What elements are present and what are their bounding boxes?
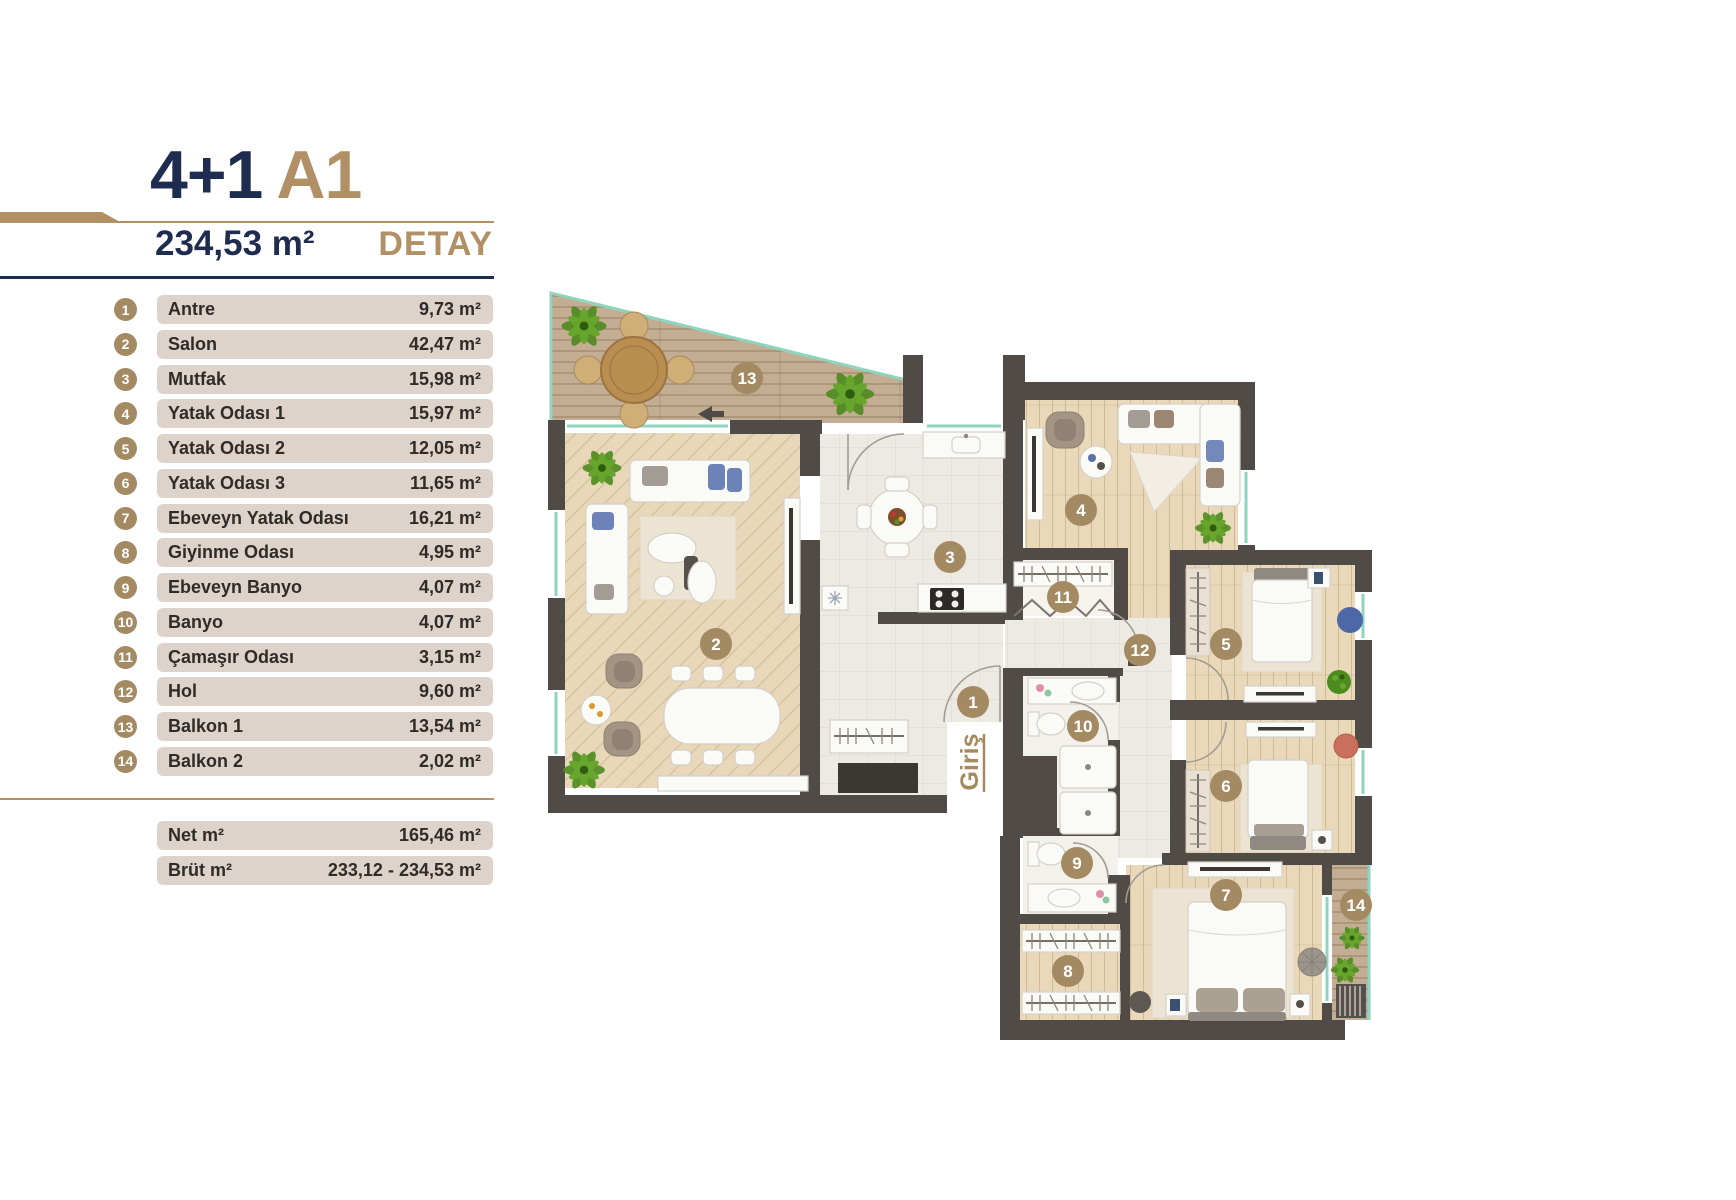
total-area: 234,53 m² <box>155 224 315 264</box>
legend-row: 1Antre9,73 m² <box>0 295 500 324</box>
room-name: Balkon 2 <box>168 751 243 772</box>
sink <box>1048 889 1080 907</box>
room-name: Ebeveyn Yatak Odası <box>168 508 349 529</box>
legend-row: 6Yatak Odası 311,65 m² <box>0 469 500 498</box>
side-table <box>581 695 611 725</box>
pouf <box>1337 607 1363 633</box>
sink <box>1072 682 1104 700</box>
snowflake-icon <box>828 591 842 605</box>
room-area: 42,47 m² <box>409 334 481 355</box>
room-area: 15,98 m² <box>409 369 481 390</box>
room-name: Antre <box>168 299 215 320</box>
legend-row: 12Hol9,60 m² <box>0 677 500 706</box>
legend-bar: Yatak Odası 311,65 m² <box>157 469 493 498</box>
legend-number-badge: 11 <box>114 646 137 669</box>
divider-navy <box>0 276 494 279</box>
plan-room-number: 2 <box>711 635 720 654</box>
legend-row: 8Giyinme Odası4,95 m² <box>0 538 500 567</box>
net-value: 165,46 m² <box>399 825 481 846</box>
block-code: A1 <box>276 137 361 213</box>
plan-room-number: 10 <box>1074 717 1093 736</box>
plan-room-number: 5 <box>1221 635 1230 654</box>
room-name: Banyo <box>168 612 223 633</box>
legend-bar: Hol9,60 m² <box>157 677 493 706</box>
brut-area-row: Brüt m² 233,12 - 234,53 m² <box>157 856 493 885</box>
room-name: Çamaşır Odası <box>168 647 294 668</box>
sideboard <box>658 776 808 791</box>
pouf <box>1129 991 1151 1013</box>
room-area: 11,65 m² <box>410 473 481 494</box>
room-area: 9,73 m² <box>419 299 481 320</box>
legend-row: 14Balkon 22,02 m² <box>0 747 500 776</box>
room-area: 13,54 m² <box>409 716 481 737</box>
pillow <box>1254 824 1304 836</box>
headboard <box>1250 836 1306 850</box>
legend-number-badge: 4 <box>114 402 137 425</box>
coffee-table <box>688 561 716 603</box>
room-area: 15,97 m² <box>409 403 481 424</box>
legend-row: 13Balkon 113,54 m² <box>0 712 500 741</box>
plan-room-number: 1 <box>968 693 977 712</box>
pillow <box>1243 988 1285 1012</box>
plan-room-number: 11 <box>1054 588 1072 607</box>
legend-bar: Mutfak15,98 m² <box>157 365 493 394</box>
legend-bar: Yatak Odası 212,05 m² <box>157 434 493 463</box>
room-name: Yatak Odası 2 <box>168 438 285 459</box>
pouf <box>1334 734 1358 758</box>
plan-room-number: 6 <box>1221 777 1230 796</box>
legend-row: 5Yatak Odası 212,05 m² <box>0 434 500 463</box>
plan-room-number: 14 <box>1347 896 1366 915</box>
room-area: 12,05 m² <box>409 438 481 459</box>
room-name: Mutfak <box>168 369 226 390</box>
legend-row: 11Çamaşır Odası3,15 m² <box>0 643 500 672</box>
kitchen-sink <box>952 437 980 453</box>
legend-bar: Ebeveyn Yatak Odası16,21 m² <box>157 504 493 533</box>
legend-bar: Banyo4,07 m² <box>157 608 493 637</box>
page-title: 4+1A1 <box>150 136 361 214</box>
room-area: 9,60 m² <box>419 681 481 702</box>
legend-number-badge: 6 <box>114 472 137 495</box>
legend-bar: Antre9,73 m² <box>157 295 493 324</box>
shoe-cabinet <box>838 763 918 793</box>
legend-row: 3Mutfak15,98 m² <box>0 365 500 394</box>
legend-bar: Salon42,47 m² <box>157 330 493 359</box>
shaft <box>1023 756 1057 830</box>
legend-bar: Giyinme Odası4,95 m² <box>157 538 493 567</box>
legend-number-badge: 14 <box>114 750 137 773</box>
layout-type: 4+1 <box>150 137 262 213</box>
entrance-text: Giriş <box>956 734 984 791</box>
legend-row: 9Ebeveyn Banyo4,07 m² <box>0 573 500 602</box>
legend-row: 4Yatak Odası 115,97 m² <box>0 399 500 428</box>
detail-label: DETAY <box>378 225 493 264</box>
net-label: Net m² <box>168 825 224 846</box>
headboard <box>1188 1012 1286 1021</box>
net-area-row: Net m² 165,46 m² <box>157 821 493 850</box>
legend-bar: Yatak Odası 115,97 m² <box>157 399 493 428</box>
room-name: Salon <box>168 334 217 355</box>
legend-number-badge: 1 <box>114 298 137 321</box>
legend-number-badge: 9 <box>114 576 137 599</box>
legend-row: 10Banyo4,07 m² <box>0 608 500 637</box>
legend-number-badge: 13 <box>114 715 137 738</box>
divider-tan <box>0 798 494 800</box>
plan-room-number: 9 <box>1072 854 1081 873</box>
legend-number-badge: 2 <box>114 333 137 356</box>
cooktop <box>930 588 964 610</box>
room-area: 4,07 m² <box>419 577 481 598</box>
plan-room-number: 7 <box>1221 886 1230 905</box>
bed <box>1252 580 1312 662</box>
room-name: Yatak Odası 3 <box>168 473 285 494</box>
room-area: 3,15 m² <box>419 647 481 668</box>
pillow <box>1196 988 1238 1012</box>
side-table <box>1080 446 1112 478</box>
brochure-page: 4+1A1 234,53 m² DETAY 1Antre9,73 m²2Salo… <box>0 0 1736 1200</box>
plan-room-number: 13 <box>738 369 757 388</box>
room-area: 2,02 m² <box>419 751 481 772</box>
room-name: Ebeveyn Banyo <box>168 577 302 598</box>
plan-room-number: 12 <box>1131 641 1150 660</box>
plan-room-number: 4 <box>1076 501 1086 520</box>
room-name: Hol <box>168 681 197 702</box>
legend-number-badge: 8 <box>114 541 137 564</box>
dining-table <box>664 688 780 744</box>
legend-number-badge: 5 <box>114 437 137 460</box>
legend-number-badge: 7 <box>114 507 137 530</box>
room-area: 4,07 m² <box>419 612 481 633</box>
legend-number-badge: 3 <box>114 368 137 391</box>
room-area: 4,95 m² <box>419 542 481 563</box>
legend-bar: Çamaşır Odası3,15 m² <box>157 643 493 672</box>
room-name: Balkon 1 <box>168 716 243 737</box>
legend-number-badge: 10 <box>114 611 137 634</box>
balcony2-items <box>1336 984 1366 1018</box>
hall-floor-a <box>1005 618 1120 674</box>
legend-number-badge: 12 <box>114 680 137 703</box>
plant-icon <box>1327 670 1351 694</box>
brut-value: 233,12 - 234,53 m² <box>328 860 481 881</box>
brut-label: Brüt m² <box>168 860 232 881</box>
legend-bar: Balkon 22,02 m² <box>157 747 493 776</box>
entrance-label: Giriş <box>956 734 984 792</box>
room-name: Yatak Odası 1 <box>168 403 285 424</box>
plan-room-number: 8 <box>1063 962 1072 981</box>
plan-room-number: 3 <box>945 548 954 567</box>
subtitle-row: 234,53 m² DETAY <box>155 224 493 264</box>
floor-plan: Giriş 1234567891011121314 <box>540 270 1400 1060</box>
room-area: 16,21 m² <box>409 508 481 529</box>
legend-bar: Balkon 113,54 m² <box>157 712 493 741</box>
legend-row: 2Salon42,47 m² <box>0 330 500 359</box>
legend-bar: Ebeveyn Banyo4,07 m² <box>157 573 493 602</box>
room-name: Giyinme Odası <box>168 542 294 563</box>
legend-row: 7Ebeveyn Yatak Odası16,21 m² <box>0 504 500 533</box>
